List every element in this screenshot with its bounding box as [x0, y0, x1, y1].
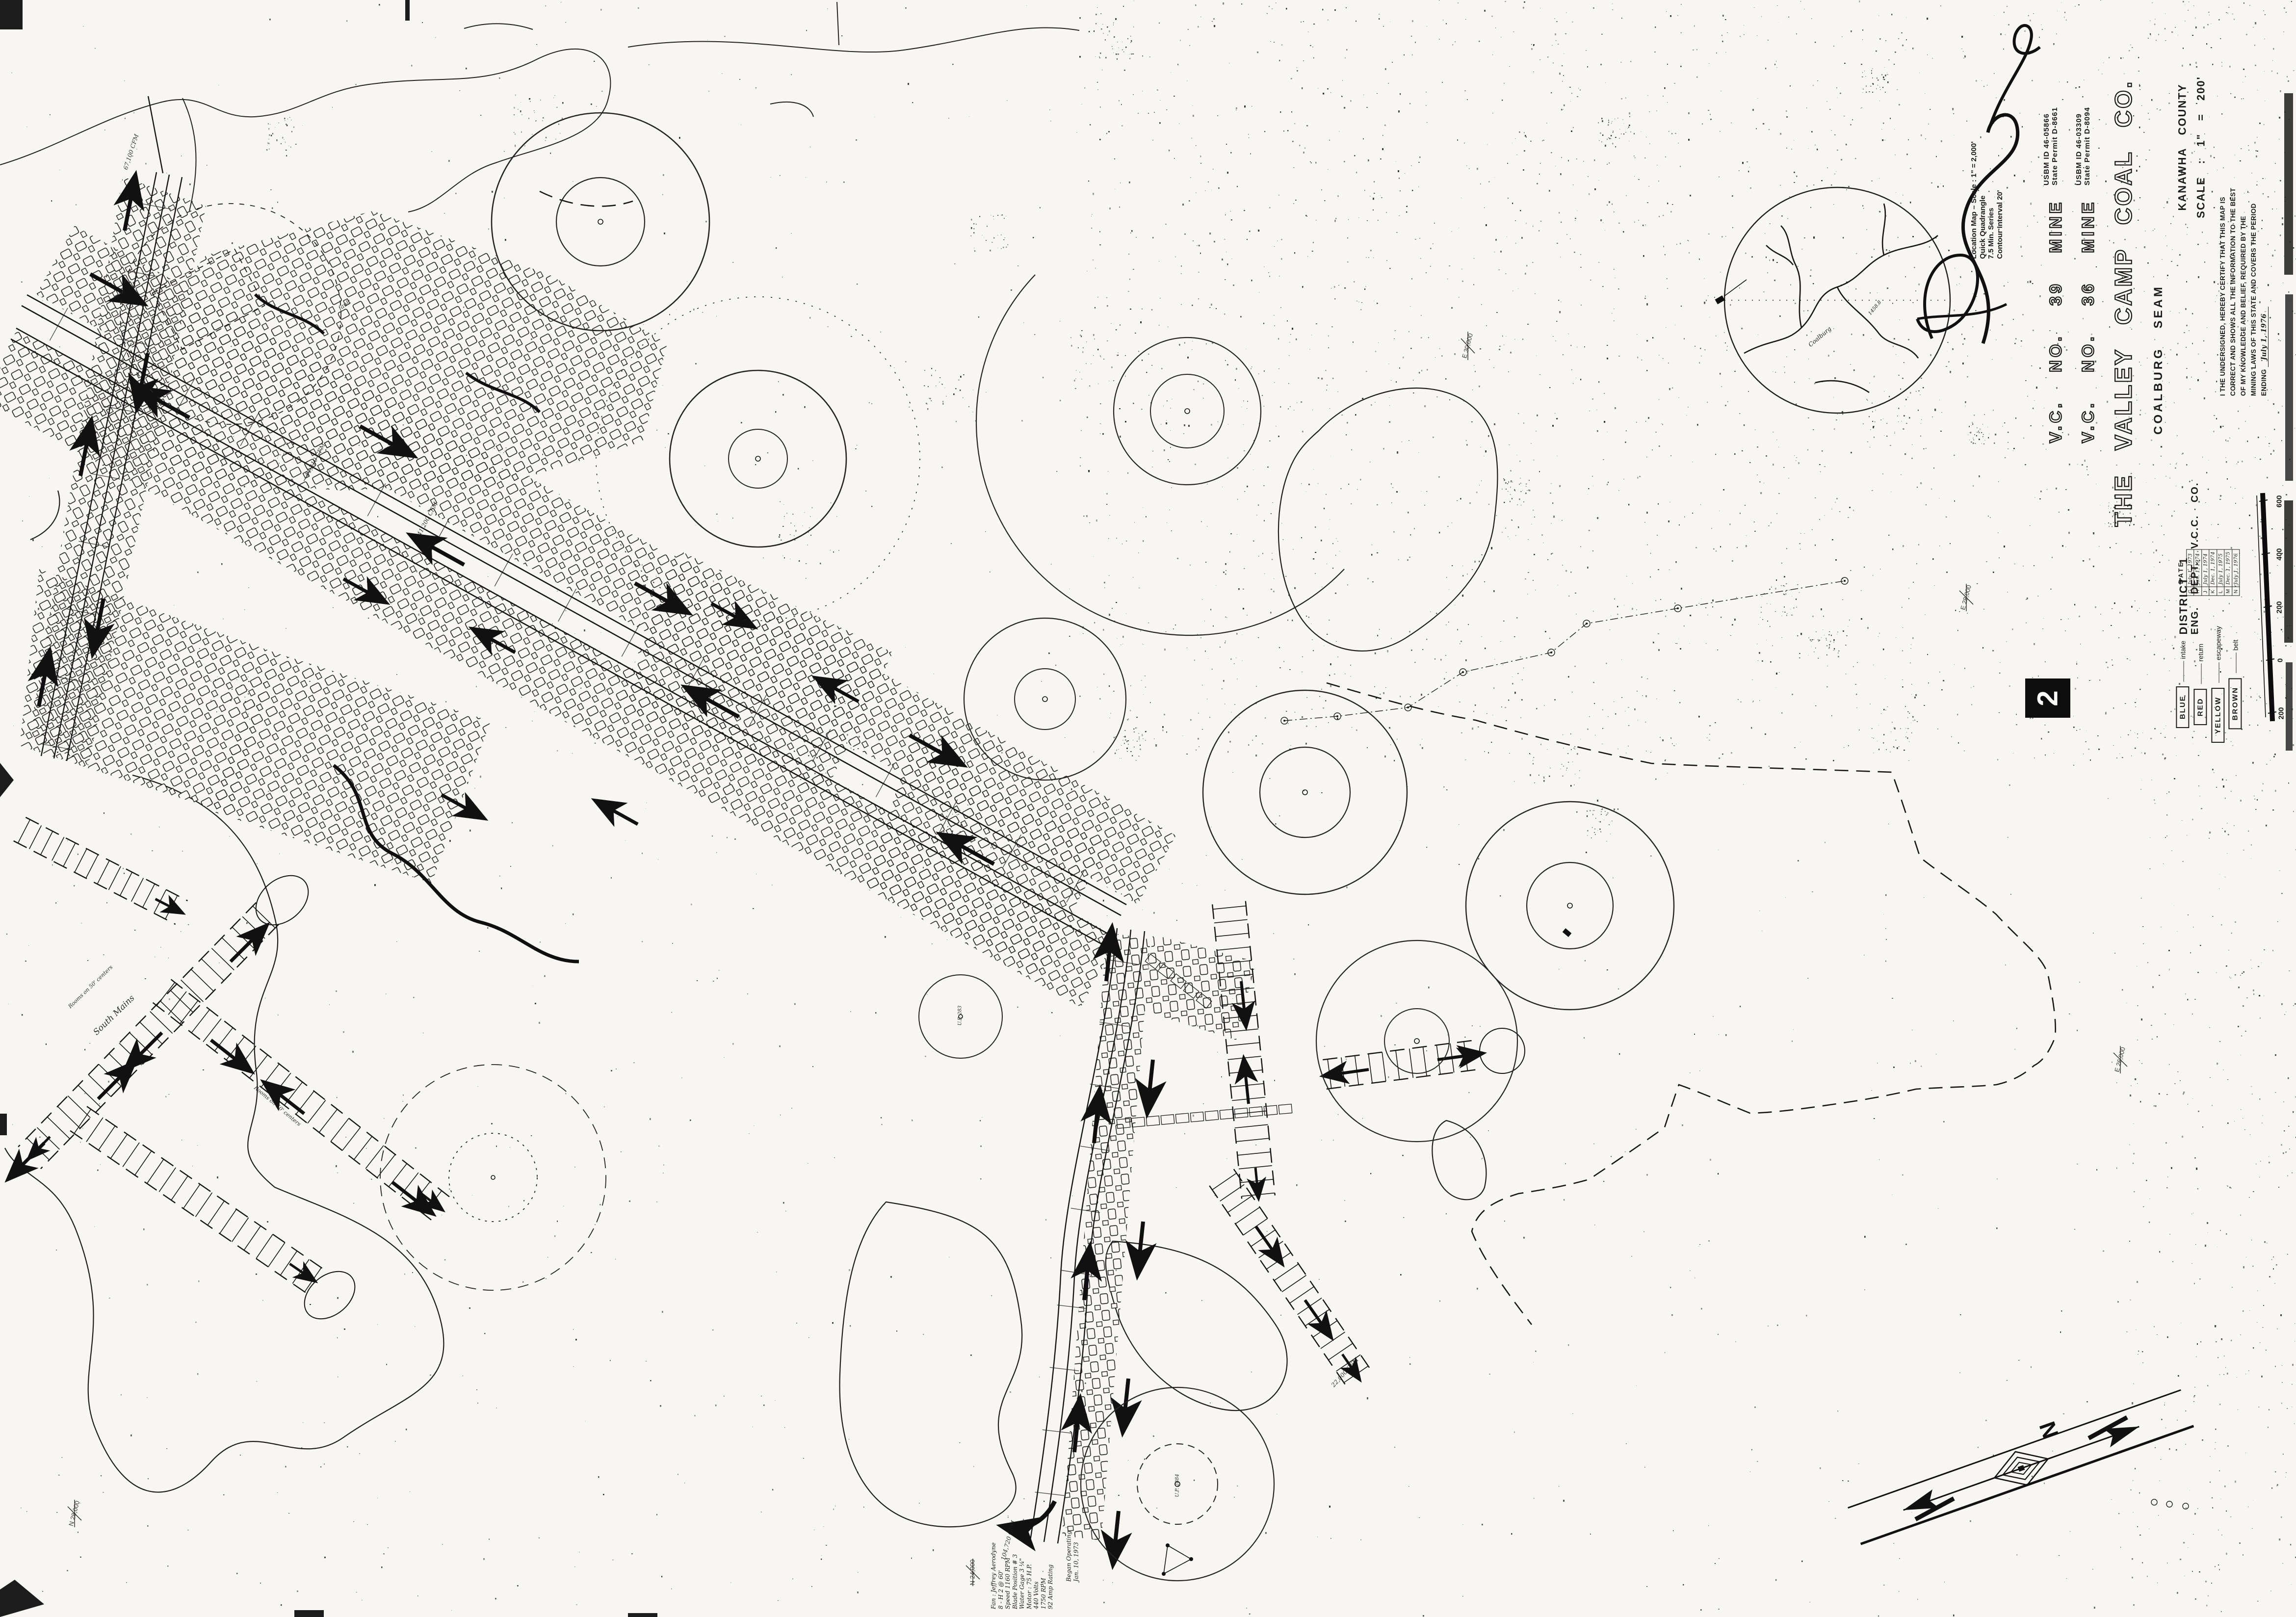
date-value: July 1, 1975 — [2217, 549, 2225, 587]
date-row: MDec. 1, 1975 — [2224, 549, 2232, 596]
fan-note-line: 92 Amp Rating — [1047, 1542, 1054, 1609]
caption-line: 7.5 Min. Series — [1987, 141, 1996, 259]
date-letter: G — [2187, 587, 2194, 596]
mine-39-permits: USBM ID 46-05866 State Permit D-8661 — [2042, 107, 2060, 185]
title-county: KANAWHA COUNTY — [2176, 83, 2188, 210]
cert-line: OF MY KNOWLEDGE AND BELIEF, REQUIRED BY … — [2238, 188, 2248, 396]
fan-note-line: Fan : Jeffrey Aerodyne — [990, 1542, 997, 1609]
cert-line: I THE UNDERSIGNED, HEREBY CERTIFY THAT T… — [2218, 188, 2228, 396]
cert-line: CORRECT AND SHOWS ALL THE INFORMATION TO… — [2228, 188, 2238, 396]
well-label: U.P. 283 — [957, 1006, 963, 1026]
date-value: July 1, 1973 — [2187, 549, 2194, 587]
date-row: JJuly 1, 1974 — [2202, 549, 2210, 596]
date-value: Jan. 1, 1974 — [2194, 549, 2202, 587]
title-mine-39: V.C. NO. 39 MINE — [2046, 200, 2065, 443]
location-map-caption: Location Map – Scale : 1" = 2,000' Quick… — [1970, 141, 2004, 259]
mine-map-sheet: N V.C. NO. 39 MINE USBM ID 46-05866 Stat… — [0, 0, 2296, 1617]
fan-note-line: 8 - H 2 @ 60' — [997, 1542, 1004, 1609]
date-value: Dec. 1, 1974 — [2209, 549, 2217, 587]
date-value: July 1, 1976 — [2232, 549, 2240, 587]
legend-item-intake: BLUE ——— intake — [2176, 641, 2189, 728]
contour-lines — [0, 2, 1079, 212]
fan-note-line: Speed 1160 RPM — [1004, 1542, 1012, 1609]
fan-note-line: Water Gage 3 ¼" — [1018, 1542, 1026, 1609]
date-table-header: DATE — [2177, 549, 2185, 596]
fan-notes: Fan : Jeffrey Aerodyne 8 - H 2 @ 60' Spe… — [990, 1542, 1054, 1609]
map-linework: N — [0, 0, 2296, 1617]
mine-36-usbm-id: USBM ID 46-03309 — [2075, 107, 2083, 185]
caption-line: Quick Quadrangle — [1979, 141, 1987, 259]
legend-item-return: RED ——— return — [2193, 644, 2207, 725]
date-letter: M — [2224, 587, 2232, 596]
date-row: GJuly 1, 1973 — [2187, 549, 2194, 596]
date-letter: H — [2194, 587, 2202, 596]
title-scale: SCALE : 1" = 200' — [2194, 76, 2207, 218]
cert-line-ending: ENDING July 1, 1976 — [2259, 188, 2270, 396]
scale-bar-label: 200 — [2277, 707, 2285, 719]
legend-meaning-intake: ——— intake — [2179, 641, 2187, 681]
legend-color-brown: BROWN — [2228, 678, 2242, 729]
date-letter: J — [2202, 587, 2210, 596]
sheet-number: 2 — [2031, 690, 2064, 706]
grid-label: N 24,000 — [969, 1560, 977, 1586]
fan-note-line: Blade Position # 3 — [1011, 1542, 1018, 1609]
scale-bar — [2257, 493, 2276, 721]
date-row: KDec. 1, 1974 — [2209, 549, 2217, 596]
date-table: DATE GJuly 1, 1973 HJan. 1, 1974 JJuly 1… — [2177, 549, 2240, 596]
fan-status-line: Began Operating — [1066, 1531, 1073, 1582]
cert-ending-word: ENDING — [2260, 369, 2268, 396]
date-value: Dec. 1, 1975 — [2224, 549, 2232, 587]
title-mine-36: V.C. NO. 36 MINE — [2079, 200, 2098, 443]
cert-ending-date: July 1, 1976 — [2260, 307, 2269, 367]
date-value: July 1, 1974 — [2202, 549, 2210, 587]
projected-entries — [14, 817, 1525, 1387]
scale-bar-label: 600 — [2275, 495, 2283, 507]
legend-item-escapeway: YELLOW ——— escapeway — [2211, 626, 2224, 743]
legend-item-belt: BROWN ——— belt — [2228, 640, 2242, 730]
fan-note-line: Motor : 75 H.P. — [1025, 1542, 1033, 1609]
north-letter: N — [2034, 1418, 2063, 1442]
mine-36-permits: USBM ID 46-03309 State Permit D-8094 — [2075, 107, 2092, 185]
fan-status: Began Operating Jan. 10, 1973 — [1066, 1531, 1080, 1582]
fan-note-line: 440 Volts — [1033, 1542, 1040, 1609]
north-arrow-icon: N — [1843, 1377, 2193, 1544]
well-label: U.P. 2884 — [1174, 1474, 1180, 1497]
sheet-number-badge: 2 — [2025, 678, 2070, 718]
mine-39-usbm-id: USBM ID 46-05866 — [2042, 107, 2051, 185]
title-company: THE VALLEY CAMP COAL CO. — [2110, 79, 2137, 526]
legend-color-red: RED — [2193, 689, 2207, 725]
scale-bar-label: 400 — [2275, 548, 2283, 560]
legend-color-yellow: YELLOW — [2211, 688, 2224, 743]
date-row: LJuly 1, 1975 — [2217, 549, 2225, 596]
legend-meaning-return: ——— return — [2196, 644, 2204, 684]
outcrop-lines — [5, 388, 1497, 1527]
caption-line: Location Map – Scale : 1" = 2,000' — [1970, 141, 1979, 259]
date-letter: K — [2209, 587, 2217, 596]
mine-36-state-permit: State Permit D-8094 — [2083, 107, 2091, 185]
legend-meaning-belt: ——— belt — [2231, 640, 2239, 673]
location-map — [1715, 187, 1950, 413]
scale-bar-label: 0 — [2276, 658, 2284, 662]
fan-status-line: Jan. 10, 1973 — [1072, 1531, 1080, 1582]
caption-line: Contour Interval 20' — [1996, 141, 2005, 259]
title-seam: COALBURG SEAM — [2152, 285, 2166, 435]
certification-text: I THE UNDERSIGNED, HEREBY CERTIFY THAT T… — [2218, 188, 2270, 396]
scale-bar-label: 200 — [2275, 601, 2283, 613]
date-row: HJan. 1, 1974 — [2194, 549, 2202, 596]
date-letter: L — [2217, 587, 2225, 596]
pillar-fields — [0, 177, 1256, 1540]
date-row: NJuly 1, 1976 — [2232, 549, 2240, 596]
legend-color-blue: BLUE — [2176, 686, 2189, 728]
legend-meaning-escapeway: ——— escapeway — [2214, 626, 2222, 683]
date-letter: N — [2232, 587, 2240, 596]
cert-line: MINING LAWS OF THIS STATE AND COVERS THE… — [2248, 188, 2259, 396]
mine-39-state-permit: State Permit D-8661 — [2051, 107, 2059, 185]
fan-note-line: 1750 RPM — [1040, 1542, 1047, 1609]
